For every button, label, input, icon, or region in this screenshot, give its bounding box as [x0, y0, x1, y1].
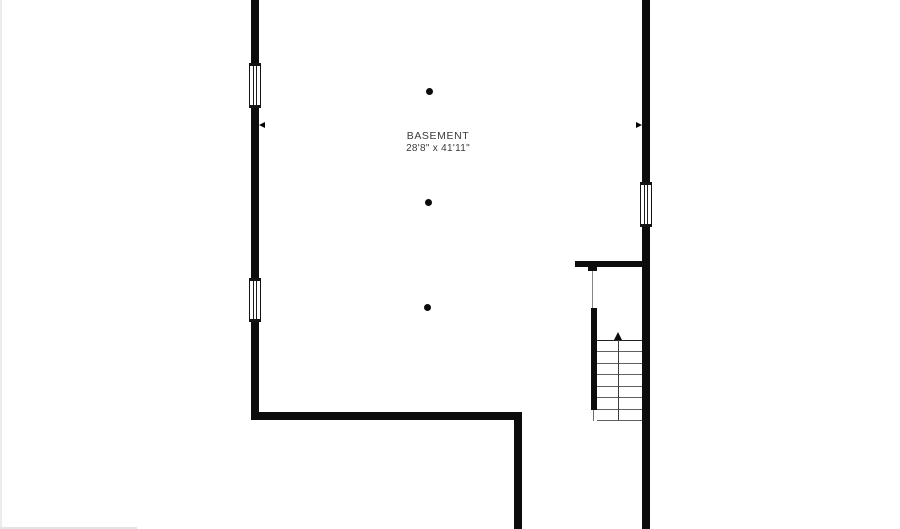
basement-floorplan: BASEMENT 28'8" x 41'11" [0, 0, 900, 529]
room-label-group: BASEMENT 28'8" x 41'11" [358, 131, 518, 154]
room-dimensions-label: 28'8" x 41'11" [358, 143, 518, 155]
stair-tread [597, 363, 642, 364]
stair-direction-line [618, 340, 619, 420]
window-symbol-left-upper [249, 63, 261, 108]
window-symbol-left-lower [249, 278, 261, 322]
dimension-arrow-left-icon [259, 122, 265, 128]
dimension-arrow-right-icon [636, 122, 642, 128]
stair-tread [597, 340, 642, 341]
stair-tread [597, 386, 642, 387]
room-name-label: BASEMENT [358, 131, 518, 143]
image-edge-artifact [0, 0, 2, 529]
stair-tread [597, 351, 642, 352]
window-pane-line [253, 66, 254, 105]
stairs-up-arrow-icon [614, 332, 622, 340]
bottom-exterior-wall [251, 412, 522, 420]
window-pane-line [256, 281, 257, 319]
bottom-right-exterior-wall [514, 412, 522, 529]
support-column-dot [426, 88, 433, 95]
staircase [597, 340, 642, 421]
window-pane-line [647, 185, 648, 224]
stair-tread [597, 374, 642, 375]
window-symbol-right [640, 182, 652, 227]
stair-lower-edge-line [593, 410, 594, 421]
window-pane-line [644, 185, 645, 224]
stair-tread [597, 420, 642, 421]
stair-tread [597, 409, 642, 410]
support-column-dot [424, 304, 431, 311]
window-pane-line [253, 281, 254, 319]
support-column-dot [425, 199, 432, 206]
window-pane-line [256, 66, 257, 105]
stair-opening-edge-line [592, 271, 593, 308]
stair-enclosure-top-wall [575, 261, 650, 267]
stair-tread [597, 397, 642, 398]
